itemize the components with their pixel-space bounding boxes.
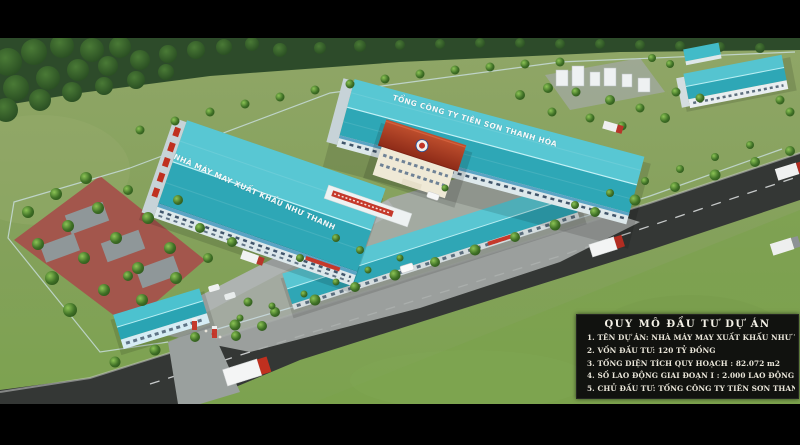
letterbox-bottom	[0, 404, 800, 445]
project-info-panel: QUY MÔ ĐẦU TƯ DỰ ÁN 1. TÊN DỰ ÁN: NHÀ MÁ…	[576, 314, 799, 399]
info-line-area: 3. TỔNG DIỆN TÍCH QUY HOẠCH : 82.072 m2	[587, 358, 795, 371]
info-line-capital: 2. VỐN ĐẦU TƯ: 120 TỶ ĐỒNG	[587, 345, 795, 358]
letterbox-top	[0, 0, 800, 38]
aerial-rendering-scene: NHÀ MÁY MAY XUẤT KHẨU NHƯ THANH TỔNG CÔN…	[0, 0, 800, 445]
project-info-lines: 1. TÊN DỰ ÁN: NHÀ MÁY MAY XUẤT KHẨU NHƯ …	[576, 330, 799, 396]
project-info-title: QUY MÔ ĐẦU TƯ DỰ ÁN	[576, 319, 799, 330]
info-line-workforce: 4. SỐ LAO ĐỘNG GIAI ĐOẠN I : 2.000 LAO Đ…	[587, 370, 795, 383]
info-line-project-name: 1. TÊN DỰ ÁN: NHÀ MÁY MAY XUẤT KHẨU NHƯ …	[587, 332, 795, 345]
info-line-investor: 5. CHỦ ĐẦU TƯ: TỔNG CÔNG TY TIÊN SƠN THA…	[587, 383, 795, 396]
